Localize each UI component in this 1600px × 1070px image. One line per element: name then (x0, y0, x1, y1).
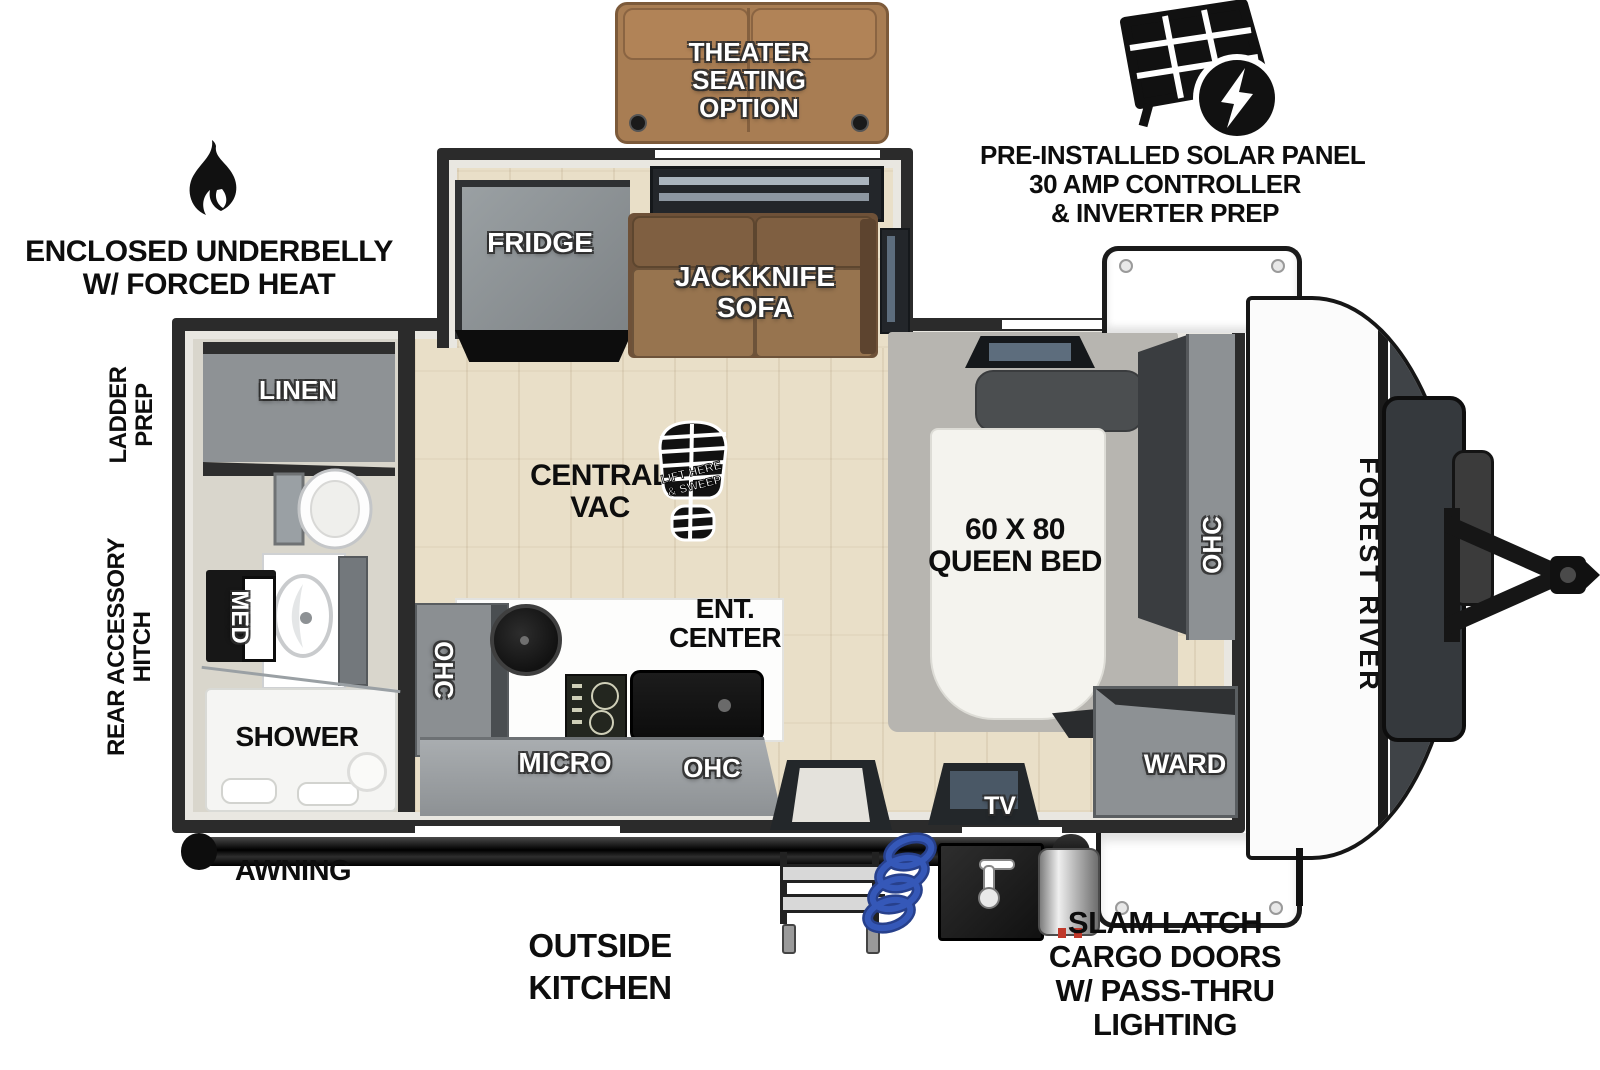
cargo-doors-label-3: W/ PASS-THRU (1020, 974, 1310, 1007)
sofa-side-window (880, 228, 910, 334)
shower-towel (221, 778, 277, 804)
queen-bed-label-1: 60 X 80 (915, 514, 1115, 546)
screw (1119, 259, 1133, 273)
ward-label: WARD (1125, 750, 1245, 779)
fridge (455, 180, 630, 339)
med-label: MED (228, 577, 252, 657)
bed-ohc-label: OHC (1198, 485, 1226, 605)
kitchen-ohc-label: OHC (432, 615, 458, 725)
shower-drain (347, 752, 387, 792)
theater-label-1: THEATER (615, 38, 883, 66)
wall-light-strip (962, 827, 1062, 835)
fridge-base (455, 330, 633, 362)
solar-panel-icon (1085, 0, 1295, 142)
skylight-glass (989, 343, 1071, 361)
cooktop-knobs (572, 684, 582, 724)
entry-door-frame (770, 760, 892, 830)
screw (1271, 259, 1285, 273)
cargo-doors-label-1: SLAM LATCH (1020, 906, 1310, 939)
kitchen-sink (490, 604, 562, 676)
sofa-armrest (860, 219, 876, 354)
ladder-prep-label: LADDER PREP (106, 340, 164, 490)
tv-label: TV (960, 793, 1040, 820)
bathroom-sink (268, 566, 338, 666)
window-glass (887, 236, 895, 322)
awning-end-cap-left (181, 833, 217, 870)
entry-door-opening (792, 768, 870, 822)
slide-top-window-strip (655, 150, 880, 158)
linen-label: LINEN (238, 376, 358, 404)
bed-skylight (965, 336, 1095, 368)
underbelly-text-2: W/ FORCED HEAT (0, 269, 418, 301)
bootprint-icon: LIFT HERE & SWEEP (648, 418, 738, 544)
cargo-doors-label-4: LIGHTING (1020, 1008, 1310, 1041)
wall-light-strip (415, 826, 620, 835)
toilet (273, 462, 375, 558)
underbelly-text-1: ENCLOSED UNDERBELLY (0, 236, 418, 268)
unit-knob (718, 699, 731, 712)
queen-bed-label-2: QUEEN BED (915, 546, 1115, 578)
outside-kitchen-label-1: OUTSIDE (500, 928, 700, 964)
shower-label: SHOWER (217, 722, 377, 752)
step-foot (782, 924, 796, 954)
bed-ohc-dark-band (1138, 334, 1190, 636)
fridge-label: FRIDGE (470, 228, 610, 258)
theater-seating-option: THEATER SEATING OPTION (615, 2, 883, 138)
step-rail (780, 852, 787, 924)
wardrobe-top-band (1096, 689, 1235, 715)
theater-label-3: OPTION (615, 94, 883, 122)
wall-light-strip (1002, 320, 1108, 329)
forest-river-brand: FOREST RIVER (1353, 425, 1383, 725)
awning-label: AWNING (228, 856, 358, 887)
sink-drain (520, 636, 529, 645)
burner (591, 682, 619, 710)
counter-ohc-label: OHC (672, 754, 752, 782)
ent-center-unit (630, 670, 764, 742)
jack-leg (1296, 848, 1303, 906)
micro-label: MICRO (505, 748, 625, 778)
outside-kitchen-label-2: KITCHEN (500, 970, 700, 1006)
outside-faucet (962, 852, 1022, 912)
ent-center-label-2: CENTER (645, 623, 805, 653)
rear-accessory-hitch-label: REAR ACCESSORY HITCH (104, 522, 166, 772)
jackknife-label-1: JACKKNIFE (665, 262, 845, 292)
rv-floorplan-canvas: THEATER SEATING OPTION PRE-INSTALLED SOL… (0, 0, 1600, 1070)
window-slat (659, 177, 869, 185)
cargo-doors-label-2: CARGO DOORS (1020, 940, 1310, 973)
flame-icon (176, 138, 242, 236)
solar-text-1: PRE-INSTALLED SOLAR PANEL (980, 141, 1350, 169)
shower-towel (297, 782, 359, 806)
bed-pillow (975, 370, 1144, 432)
hitch-a-frame (1444, 500, 1600, 650)
theater-label-2: SEATING (615, 66, 883, 94)
bathroom-divider-wall (398, 331, 415, 812)
solar-text-3: & INVERTER PREP (980, 199, 1350, 227)
jackknife-label-2: SOFA (665, 293, 845, 323)
burner (589, 710, 614, 735)
cooktop (565, 674, 627, 740)
ent-center-label-1: ENT. (645, 594, 805, 624)
vanity-side-cabinet (338, 556, 368, 686)
solar-text-2: 30 AMP CONTROLLER (980, 170, 1350, 198)
window-slat (659, 193, 869, 201)
